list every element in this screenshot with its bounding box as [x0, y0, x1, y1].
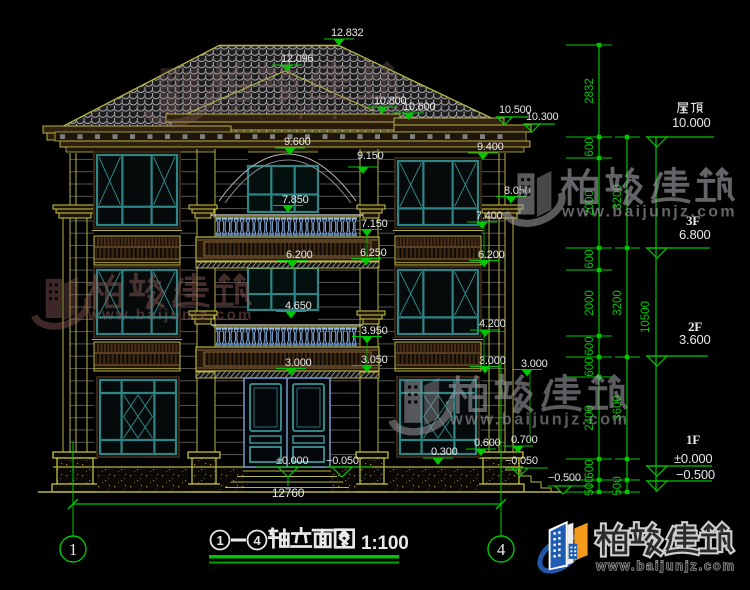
svg-text:3.600: 3.600 [679, 332, 711, 347]
svg-text:2000: 2000 [584, 290, 596, 316]
svg-text:12.832: 12.832 [331, 27, 364, 39]
svg-text:600: 600 [584, 137, 596, 156]
svg-text:0.300: 0.300 [431, 446, 458, 458]
svg-text:12760: 12760 [272, 486, 305, 500]
svg-text:1F: 1F [686, 432, 700, 447]
svg-text:2832: 2832 [584, 78, 596, 104]
svg-text:7.150: 7.150 [361, 218, 388, 230]
svg-text:6.250: 6.250 [360, 247, 387, 259]
svg-text:−0.050: −0.050 [505, 455, 538, 467]
svg-text:9.600: 9.600 [284, 136, 311, 148]
svg-text:10.300: 10.300 [526, 111, 559, 123]
svg-text:1: 1 [216, 533, 223, 548]
svg-text:3.000: 3.000 [285, 357, 312, 369]
svg-text:4: 4 [497, 540, 506, 559]
svg-text:6.800: 6.800 [679, 227, 711, 242]
svg-text:3200: 3200 [612, 290, 624, 316]
svg-text:600: 600 [584, 249, 596, 268]
svg-text:3.050: 3.050 [361, 354, 388, 366]
svg-text:600: 600 [584, 459, 596, 478]
svg-text:−0.500: −0.500 [548, 472, 581, 484]
svg-text:−0.500: −0.500 [676, 467, 715, 482]
svg-text:3.000: 3.000 [479, 355, 506, 367]
svg-text:4.200: 4.200 [479, 318, 506, 330]
svg-text:600: 600 [584, 357, 596, 376]
svg-text:±0.000: ±0.000 [674, 451, 712, 466]
svg-text:10500: 10500 [640, 301, 652, 333]
svg-text:10.000: 10.000 [672, 115, 711, 130]
svg-text:±0.000: ±0.000 [276, 455, 308, 467]
svg-text:4.650: 4.650 [285, 300, 312, 312]
svg-text:0.700: 0.700 [511, 434, 538, 446]
svg-text:9.150: 9.150 [357, 150, 384, 162]
svg-text:3.950: 3.950 [361, 325, 388, 337]
svg-text:7.850: 7.850 [282, 194, 309, 206]
svg-text:10.600: 10.600 [403, 101, 436, 113]
svg-text:6.200: 6.200 [478, 249, 505, 261]
svg-text:−0.050: −0.050 [326, 455, 359, 467]
svg-text:6.200: 6.200 [286, 249, 313, 261]
svg-text:4: 4 [253, 533, 261, 548]
svg-text:3.000: 3.000 [521, 358, 548, 370]
svg-text:0.600: 0.600 [474, 437, 501, 449]
svg-text:1:100: 1:100 [361, 533, 409, 554]
svg-text:9.400: 9.400 [477, 141, 504, 153]
svg-text:7.400: 7.400 [476, 210, 503, 222]
svg-text:1: 1 [69, 540, 77, 559]
svg-text:600: 600 [584, 336, 596, 355]
svg-text:500: 500 [612, 476, 624, 495]
